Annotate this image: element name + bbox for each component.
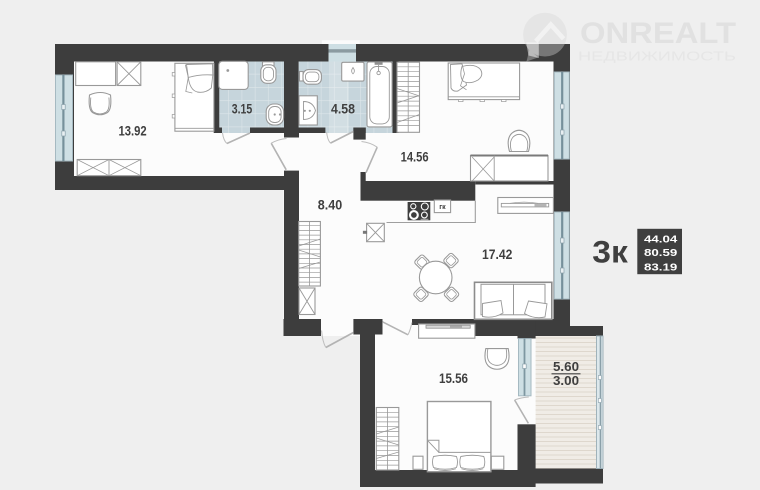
svg-text:17.42: 17.42 <box>482 246 512 262</box>
svg-text:14.56: 14.56 <box>401 149 429 165</box>
svg-text:44.04: 44.04 <box>644 233 677 245</box>
svg-text:гк: гк <box>439 204 446 211</box>
svg-text:80.59: 80.59 <box>644 247 677 259</box>
svg-text:83.19: 83.19 <box>644 261 677 273</box>
svg-text:4.58: 4.58 <box>331 100 355 116</box>
svg-text:15.56: 15.56 <box>439 370 468 386</box>
svg-text:ONREALT: ONREALT <box>580 17 736 50</box>
svg-text:8.40: 8.40 <box>318 197 343 213</box>
svg-text:НЕДВИЖИМОСТЬ: НЕДВИЖИМОСТЬ <box>578 49 736 64</box>
svg-text:13.92: 13.92 <box>119 123 147 139</box>
svg-text:3.00: 3.00 <box>553 373 579 388</box>
svg-text:3к: 3к <box>592 233 628 269</box>
svg-text:3.15: 3.15 <box>232 101 253 117</box>
svg-text:5.60: 5.60 <box>553 359 579 374</box>
